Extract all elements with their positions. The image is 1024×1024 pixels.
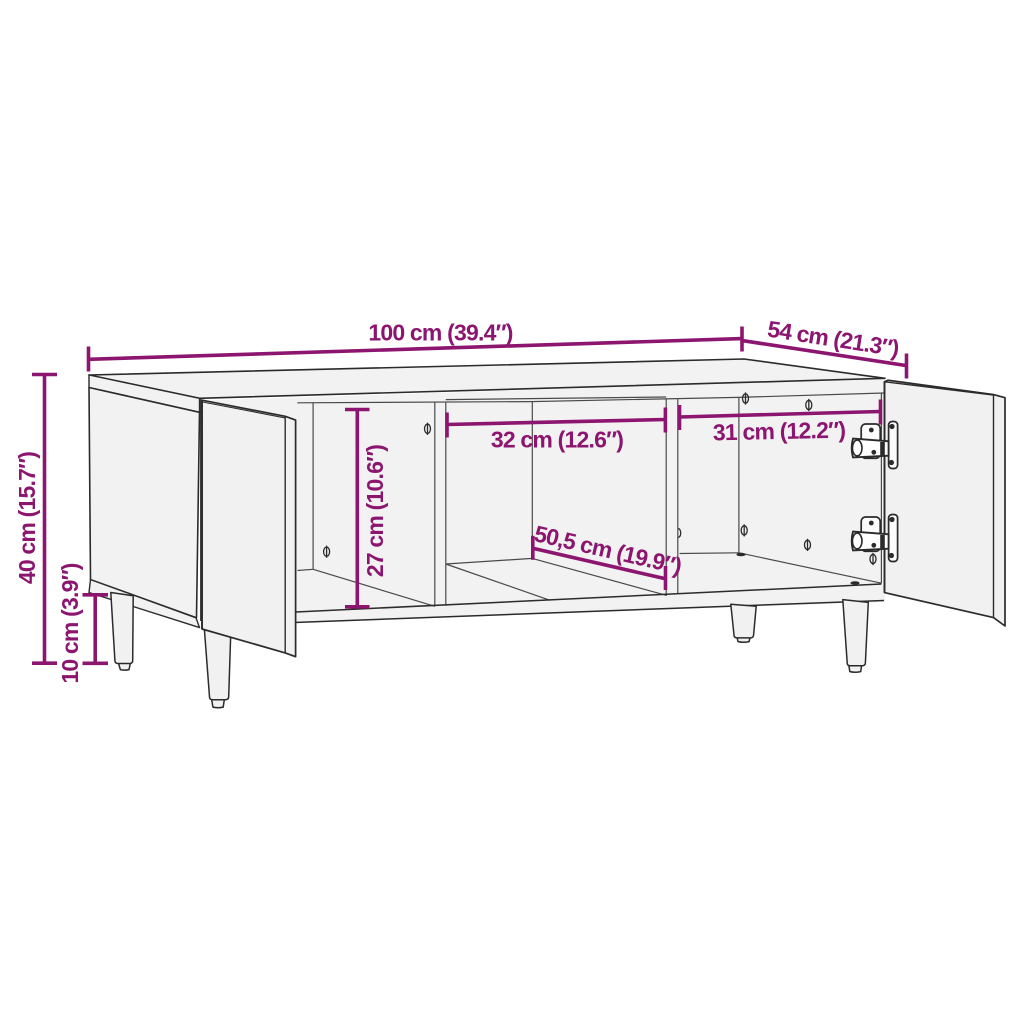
- svg-text:31 cm (12.2″): 31 cm (12.2″): [713, 417, 846, 446]
- svg-text:10 cm (3.9″): 10 cm (3.9″): [57, 563, 83, 683]
- svg-text:100 cm (39.4″): 100 cm (39.4″): [368, 320, 512, 346]
- svg-text:27 cm (10.6″): 27 cm (10.6″): [362, 445, 388, 577]
- svg-text:40 cm (15.7″): 40 cm (15.7″): [14, 452, 40, 584]
- svg-text:32 cm (12.6″): 32 cm (12.6″): [491, 427, 623, 453]
